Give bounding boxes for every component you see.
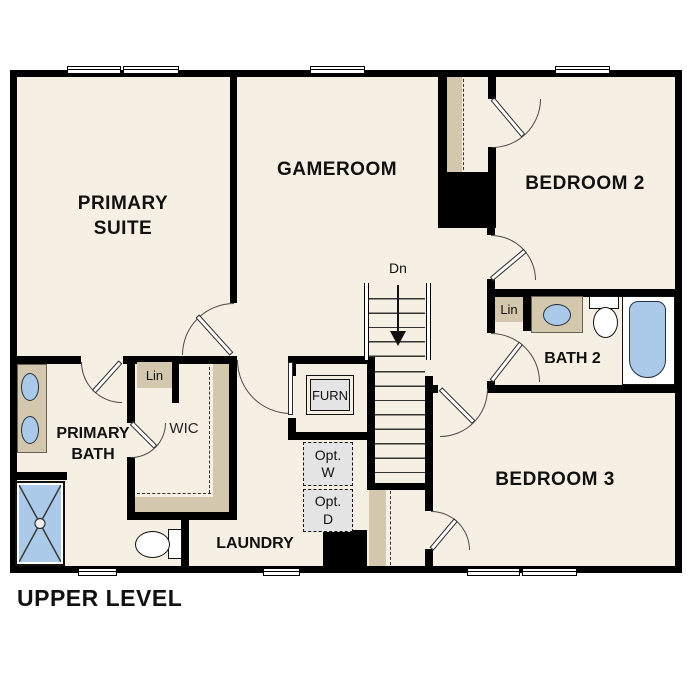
wall [523, 289, 531, 331]
wall [487, 296, 495, 333]
shower [15, 481, 65, 566]
wall [288, 356, 375, 364]
stair-arrow-stem [397, 285, 399, 332]
window [263, 568, 300, 576]
wall [425, 376, 433, 490]
room-label-primary-suite: PRIMARY SUITE [63, 192, 183, 241]
window [67, 66, 121, 74]
toilet-icon [593, 307, 618, 338]
chase [438, 172, 496, 228]
sink-icon [543, 304, 571, 326]
furnace-label: FURN [310, 379, 350, 411]
door-leaf [288, 362, 293, 415]
wall [230, 77, 237, 303]
window [467, 568, 520, 576]
tub-basin [629, 301, 666, 378]
wall [425, 549, 433, 566]
wall [127, 512, 237, 520]
closet-shelf [213, 364, 229, 512]
closet-rod [390, 491, 391, 565]
furnace: FURN [306, 375, 354, 415]
floor-plan: Lin Lin Dn [0, 0, 687, 687]
stair-rail [364, 283, 369, 360]
wall [488, 77, 496, 99]
closet-rod [209, 367, 210, 493]
stairs-lower [375, 358, 425, 483]
room-label-primary-bath: PRIMARY BATH [49, 424, 137, 466]
bathtub [622, 296, 675, 385]
toilet-icon [135, 531, 170, 558]
closet-shelf [447, 77, 462, 172]
room-label-wic: WIC [159, 419, 209, 439]
wall [487, 228, 495, 235]
wall [487, 385, 675, 393]
closet-rod [137, 493, 211, 494]
closet-shelf [369, 490, 386, 566]
sink-icon [21, 416, 39, 444]
linen-closet: Lin [137, 362, 172, 388]
wall [367, 358, 375, 490]
wall [172, 358, 179, 403]
washer-optional: Opt. W [303, 442, 353, 486]
closet-rod [463, 79, 464, 170]
toilet-tank [168, 529, 182, 559]
wall [425, 483, 433, 511]
window [310, 66, 365, 74]
wall [17, 472, 67, 480]
wall [229, 358, 237, 520]
closet-shelf [135, 497, 229, 512]
wall [438, 77, 447, 172]
room-label-bath-2: BATH 2 [535, 349, 610, 370]
wall [17, 356, 81, 364]
dryer-optional: Opt. D [303, 489, 353, 532]
window [78, 568, 117, 576]
stairs-label: Dn [380, 259, 416, 277]
chase [323, 530, 367, 566]
stair-rail [426, 283, 431, 360]
room-label-laundry: LAUNDRY [205, 534, 305, 555]
wall [181, 520, 189, 566]
room-label-bedroom-3: BEDROOM 3 [480, 468, 630, 493]
wall [288, 432, 375, 440]
wall [127, 457, 135, 520]
page-title: UPPER LEVEL [17, 584, 297, 614]
window [555, 66, 610, 74]
wall [425, 385, 438, 393]
down-arrow-icon [390, 331, 406, 346]
linen-closet: Lin [495, 297, 523, 322]
window [522, 568, 577, 576]
sink-icon [21, 373, 39, 401]
window [123, 66, 179, 74]
wall [488, 147, 496, 172]
room-label-bedroom-2: BEDROOM 2 [505, 172, 665, 197]
room-label-gameroom: GAMEROOM [267, 158, 407, 183]
wall [367, 483, 433, 490]
wall [127, 358, 135, 423]
